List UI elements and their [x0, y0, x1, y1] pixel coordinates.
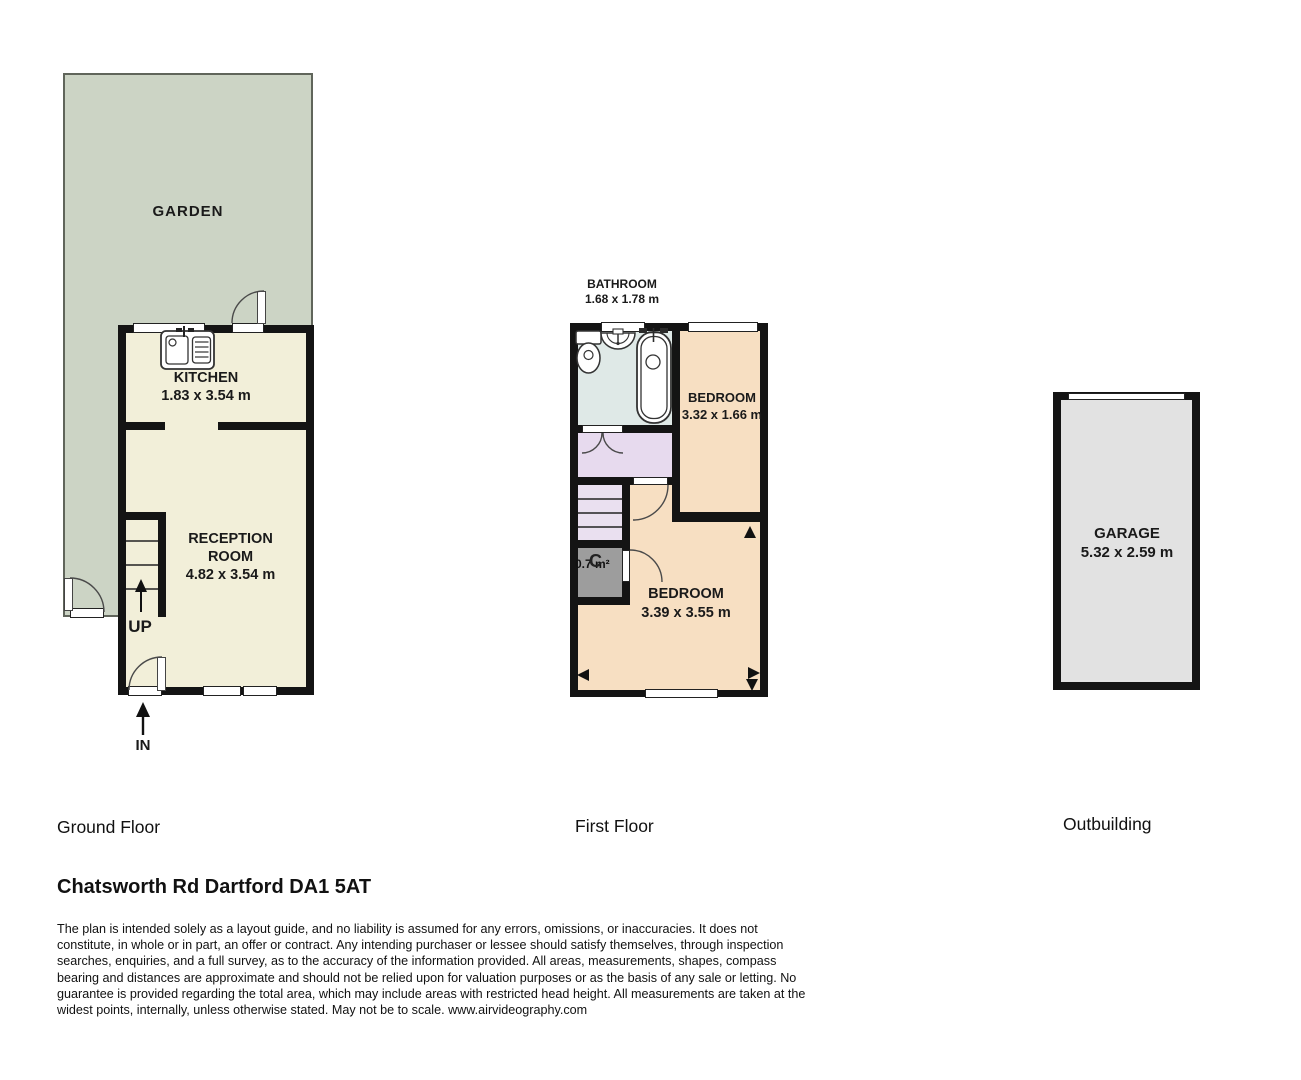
disclaimer-text: The plan is intended solely as a layout … [57, 921, 817, 1018]
cupboard-door-arc [630, 550, 662, 582]
bathroom-door-arc-right [603, 433, 623, 453]
bathroom-door-arc-left [582, 433, 602, 453]
up-arrow-icon [135, 579, 147, 612]
kitchen-sink-icon [161, 326, 214, 369]
slope-triangle-left [577, 669, 589, 681]
floorplan-page: GARDEN KITCHEN 1.83 x 3.54 m RECEPTION R… [0, 0, 1301, 1080]
address-title: Chatsworth Rd Dartford DA1 5AT [57, 876, 371, 899]
slope-triangle-right [748, 667, 760, 679]
front-door-arc [129, 657, 162, 690]
sink-icon [601, 329, 635, 349]
plan-symbols-layer [0, 0, 1301, 1080]
slope-triangle-up [744, 526, 756, 538]
in-arrow-icon [136, 702, 150, 735]
bedroom-large-door-arc [633, 485, 668, 520]
kitchen-garden-door-arc [232, 291, 264, 323]
stair-treads-first [578, 499, 622, 527]
garden-gate-arc [70, 578, 104, 612]
bathtub-icon [637, 328, 671, 423]
slope-triangles [577, 526, 760, 691]
slope-triangle-down [746, 679, 758, 691]
toilet-icon [576, 331, 601, 373]
